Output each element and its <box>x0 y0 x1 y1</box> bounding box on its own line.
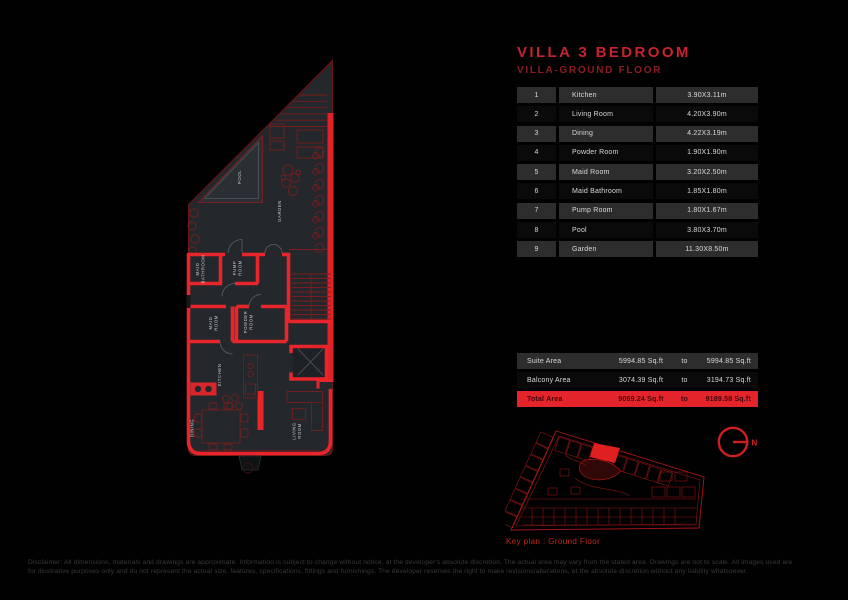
room-name: Powder Room <box>559 145 653 161</box>
room-number: 7 <box>517 203 556 219</box>
room-row: 6Maid Bathroom1.85X1.80m <box>517 183 758 199</box>
svg-text:ROOM: ROOM <box>249 314 254 330</box>
area-row: Suite Area5994.85 Sq.ftto5994.85 Sq.ft <box>517 353 758 369</box>
room-name: Kitchen <box>559 87 653 103</box>
boundary-strip <box>328 113 334 380</box>
room-number: 4 <box>517 145 556 161</box>
key-plan-rows-bottom <box>520 499 697 525</box>
room-dimensions: 11.30X8.50m <box>656 241 758 257</box>
area-row: Balcony Area3074.39 Sq.ftto3194.73 Sq.ft <box>517 372 758 388</box>
room-dimensions: 3.20X2.50m <box>656 164 758 180</box>
area-to-word: to <box>677 396 692 403</box>
area-from-value: 9069.24 Sq.ft <box>605 396 677 403</box>
area-row: Total Area9069.24 Sq.ftto9189.58 Sq.ft <box>517 391 758 407</box>
room-row: 8Pool3.80X3.70m <box>517 222 758 238</box>
area-from-value: 3074.39 Sq.ft <box>605 377 677 384</box>
label-dining: DINING <box>190 419 195 437</box>
room-number: 5 <box>517 164 556 180</box>
room-name: Maid Bathroom <box>559 183 653 199</box>
label-pump-room: PUMP <box>232 261 237 276</box>
room-number: 9 <box>517 241 556 257</box>
label-living-room: LIVING <box>292 422 297 439</box>
room-row: 1Kitchen3.90X3.11m <box>517 87 758 103</box>
page-title: VILLA 3 BEDROOM <box>517 44 691 61</box>
room-number: 8 <box>517 222 556 238</box>
room-name: Maid Room <box>559 164 653 180</box>
room-name: Pump Room <box>559 203 653 219</box>
room-dimensions: 3.90X3.11m <box>656 87 758 103</box>
area-to-value: 3194.73 Sq.ft <box>692 377 758 384</box>
room-row: 9Garden11.30X8.50m <box>517 241 758 257</box>
room-number: 6 <box>517 183 556 199</box>
svg-text:ROOM: ROOM <box>297 423 302 439</box>
area-to-word: to <box>677 358 692 365</box>
svg-text:BATHROOM: BATHROOM <box>201 255 206 284</box>
room-name: Dining <box>559 126 653 142</box>
label-maid-bathroom: MAID <box>195 263 200 276</box>
key-plan-units-left <box>505 432 554 528</box>
room-row: 3Dining4.22X3.19m <box>517 126 758 142</box>
room-table: 1Kitchen3.90X3.11m2Living Room4.20X3.90m… <box>517 87 758 261</box>
north-compass-icon: N <box>714 421 762 463</box>
room-row: 2Living Room4.20X3.90m <box>517 106 758 122</box>
label-kitchen: KITCHEN <box>217 364 222 387</box>
disclaimer-line-2: for illustrative purposes only and do no… <box>28 567 828 576</box>
area-label: Balcony Area <box>517 377 605 384</box>
area-to-value: 5994.85 Sq.ft <box>692 358 758 365</box>
area-table: Suite Area5994.85 Sq.ftto5994.85 Sq.ftBa… <box>517 353 758 411</box>
room-name: Living Room <box>559 106 653 122</box>
room-number: 2 <box>517 106 556 122</box>
page: POOL GARDEN MAID BATHROOM PUMP ROOM MAID… <box>0 0 848 600</box>
page-subtitle: VILLA-GROUND FLOOR <box>517 65 662 76</box>
area-label: Suite Area <box>517 358 605 365</box>
area-label: Total Area <box>517 396 605 403</box>
label-pool: POOL <box>237 170 242 184</box>
room-row: 5Maid Room3.20X2.50m <box>517 164 758 180</box>
entry-porch <box>239 456 261 473</box>
room-number: 3 <box>517 126 556 142</box>
disclaimer-line-1: Disclaimer: All dimensions, materials an… <box>28 558 828 567</box>
label-powder-room: POWDER <box>243 311 248 334</box>
key-plan-caption: Key plan : Ground Floor <box>506 537 600 546</box>
north-label: N <box>752 439 758 448</box>
room-dimensions: 4.22X3.19m <box>656 126 758 142</box>
room-name: Garden <box>559 241 653 257</box>
cooktop <box>191 383 217 396</box>
svg-text:ROOM: ROOM <box>238 260 243 276</box>
disclaimer: Disclaimer: All dimensions, materials an… <box>28 558 828 576</box>
room-dimensions: 1.85X1.80m <box>656 183 758 199</box>
room-row: 7Pump Room1.80X1.67m <box>517 203 758 219</box>
area-to-value: 9189.58 Sq.ft <box>692 396 758 403</box>
area-to-word: to <box>677 377 692 384</box>
room-dimensions: 4.20X3.90m <box>656 106 758 122</box>
svg-text:ROOM: ROOM <box>214 315 219 331</box>
room-name: Pool <box>559 222 653 238</box>
area-from-value: 5994.85 Sq.ft <box>605 358 677 365</box>
pool-area <box>199 136 263 203</box>
floor-plan: POOL GARDEN MAID BATHROOM PUMP ROOM MAID… <box>150 40 370 500</box>
label-maid-room: MAID <box>208 317 213 330</box>
key-plan-map <box>505 420 715 535</box>
room-number: 1 <box>517 87 556 103</box>
room-dimensions: 3.80X3.70m <box>656 222 758 238</box>
room-dimensions: 1.90X1.90m <box>656 145 758 161</box>
room-row: 4Powder Room1.90X1.90m <box>517 145 758 161</box>
elevator <box>291 347 327 380</box>
label-garden: GARDEN <box>277 200 282 222</box>
room-dimensions: 1.80X1.67m <box>656 203 758 219</box>
key-plan-units-right <box>548 469 695 497</box>
